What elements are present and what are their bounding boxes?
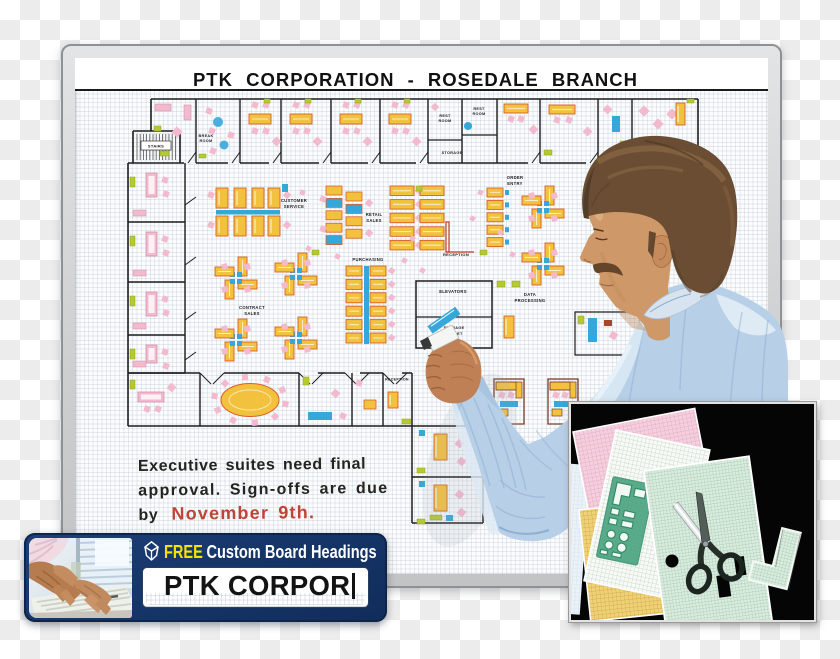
- svg-text:BREAK: BREAK: [198, 134, 213, 138]
- svg-text:RETAIL: RETAIL: [366, 212, 383, 217]
- svg-text:by: by: [138, 507, 158, 524]
- svg-text:ORDER: ORDER: [507, 175, 524, 180]
- svg-text:CONTRACT: CONTRACT: [239, 305, 265, 310]
- svg-text:PROCESSING: PROCESSING: [515, 298, 546, 303]
- svg-text:STAIRS: STAIRS: [148, 144, 164, 149]
- svg-text:CUSTOMER: CUSTOMER: [281, 198, 307, 203]
- svg-text:REST: REST: [439, 114, 451, 118]
- svg-text:ROOM: ROOM: [438, 119, 451, 123]
- svg-text:ENTRY: ENTRY: [507, 181, 523, 186]
- svg-text:November 9th.: November 9th.: [171, 502, 315, 524]
- svg-text:ROOM: ROOM: [472, 112, 485, 116]
- svg-text:SALES: SALES: [244, 311, 259, 316]
- svg-text:DATA: DATA: [524, 292, 536, 297]
- svg-text:RECEPTION: RECEPTION: [443, 252, 469, 257]
- svg-text:ELEVATORS: ELEVATORS: [439, 289, 467, 294]
- svg-text:approval. Sign-offs are due: approval. Sign-offs are due: [138, 480, 388, 500]
- svg-text:STORAGE: STORAGE: [442, 151, 463, 155]
- svg-text:RECEPTION: RECEPTION: [385, 378, 409, 382]
- svg-text:Executive suites need final: Executive suites need final: [138, 456, 366, 475]
- svg-text:REST: REST: [473, 107, 485, 111]
- svg-text:SALES: SALES: [366, 218, 381, 223]
- svg-text:ROOM: ROOM: [199, 139, 212, 143]
- svg-text:PURCHASING: PURCHASING: [352, 257, 383, 262]
- svg-text:SERVICE: SERVICE: [284, 204, 304, 209]
